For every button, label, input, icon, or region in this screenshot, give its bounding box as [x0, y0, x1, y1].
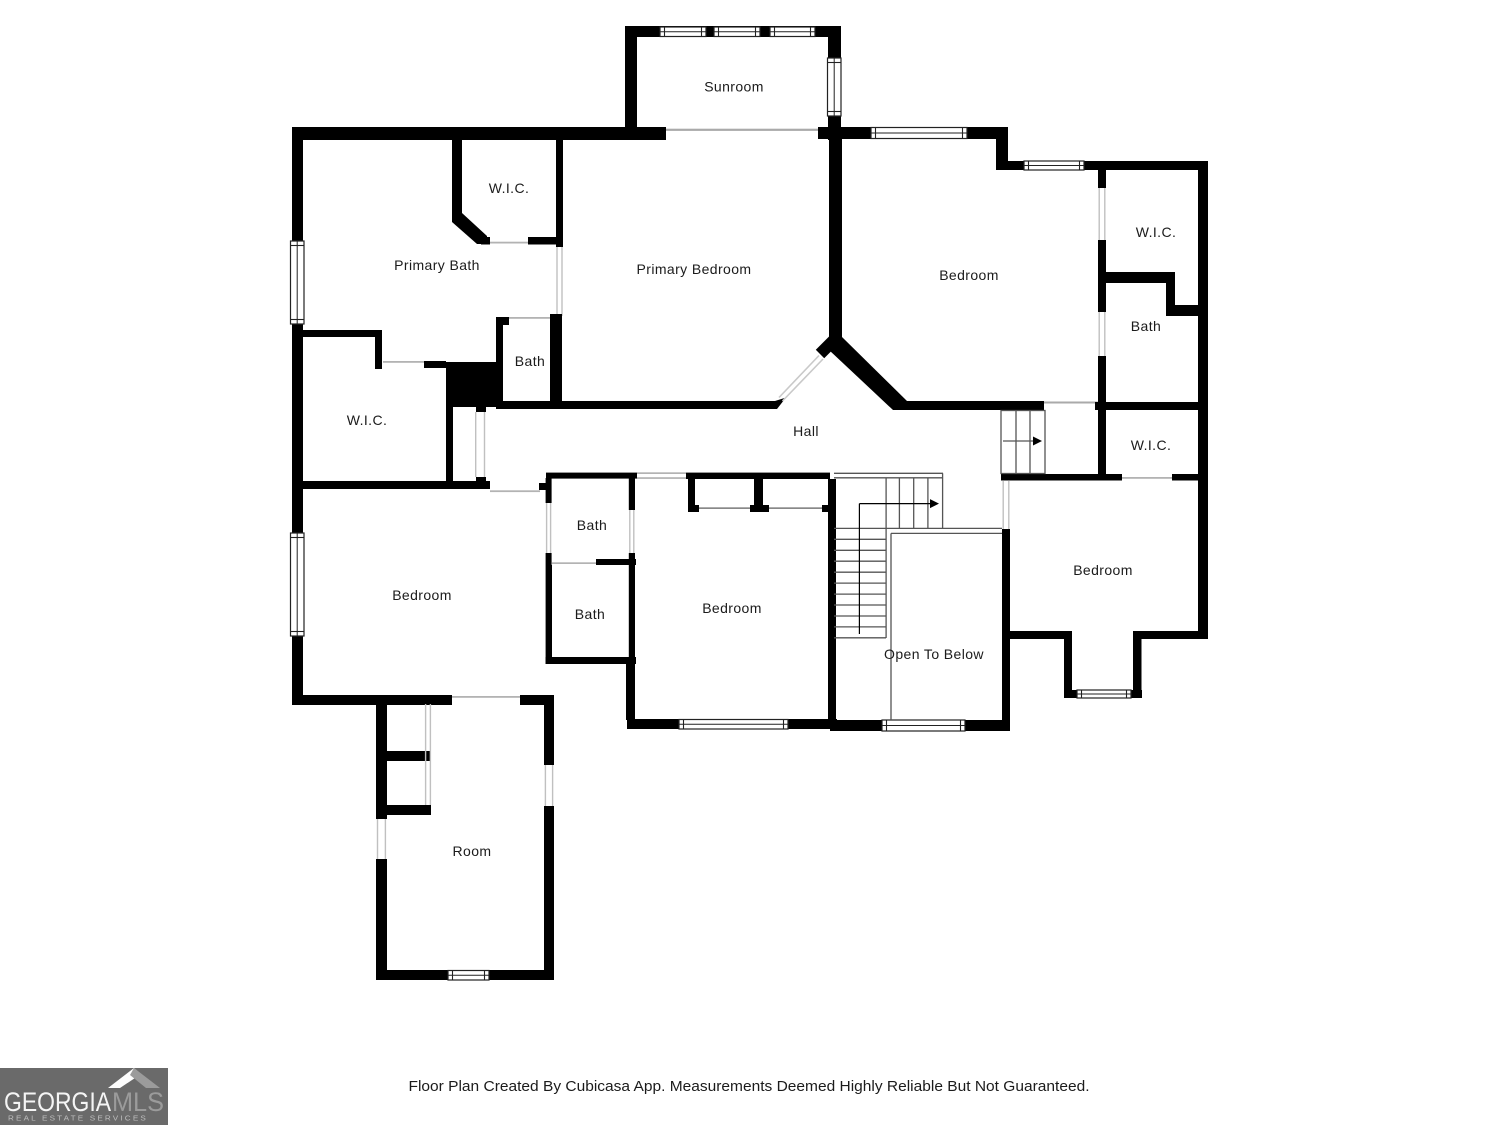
- svg-text:GEORGIA: GEORGIA: [4, 1087, 111, 1117]
- svg-text:Primary Bath: Primary Bath: [394, 257, 480, 273]
- svg-text:Bedroom: Bedroom: [392, 587, 452, 603]
- svg-text:Room: Room: [453, 843, 492, 859]
- svg-text:W.I.C.: W.I.C.: [489, 180, 530, 196]
- svg-text:W.I.C.: W.I.C.: [1136, 224, 1177, 240]
- svg-text:Sunroom: Sunroom: [704, 79, 764, 95]
- svg-text:W.I.C.: W.I.C.: [347, 412, 388, 428]
- svg-text:Floor Plan Created By Cubicasa: Floor Plan Created By Cubicasa App. Meas…: [409, 1079, 1090, 1095]
- svg-text:Bedroom: Bedroom: [702, 600, 762, 616]
- svg-text:Bath: Bath: [1131, 318, 1161, 334]
- svg-text:Bedroom: Bedroom: [1073, 562, 1133, 578]
- svg-text:REAL ESTATE SERVICES: REAL ESTATE SERVICES: [8, 1114, 148, 1123]
- svg-text:Bedroom: Bedroom: [939, 267, 999, 283]
- svg-text:Hall: Hall: [793, 423, 819, 439]
- svg-text:Bath: Bath: [515, 353, 545, 369]
- svg-text:Open To Below: Open To Below: [884, 646, 984, 662]
- svg-text:Bath: Bath: [577, 517, 607, 533]
- svg-text:Bath: Bath: [575, 606, 605, 622]
- svg-text:W.I.C.: W.I.C.: [1131, 437, 1172, 453]
- svg-text:MLS: MLS: [112, 1087, 164, 1117]
- svg-text:Primary Bedroom: Primary Bedroom: [637, 261, 752, 277]
